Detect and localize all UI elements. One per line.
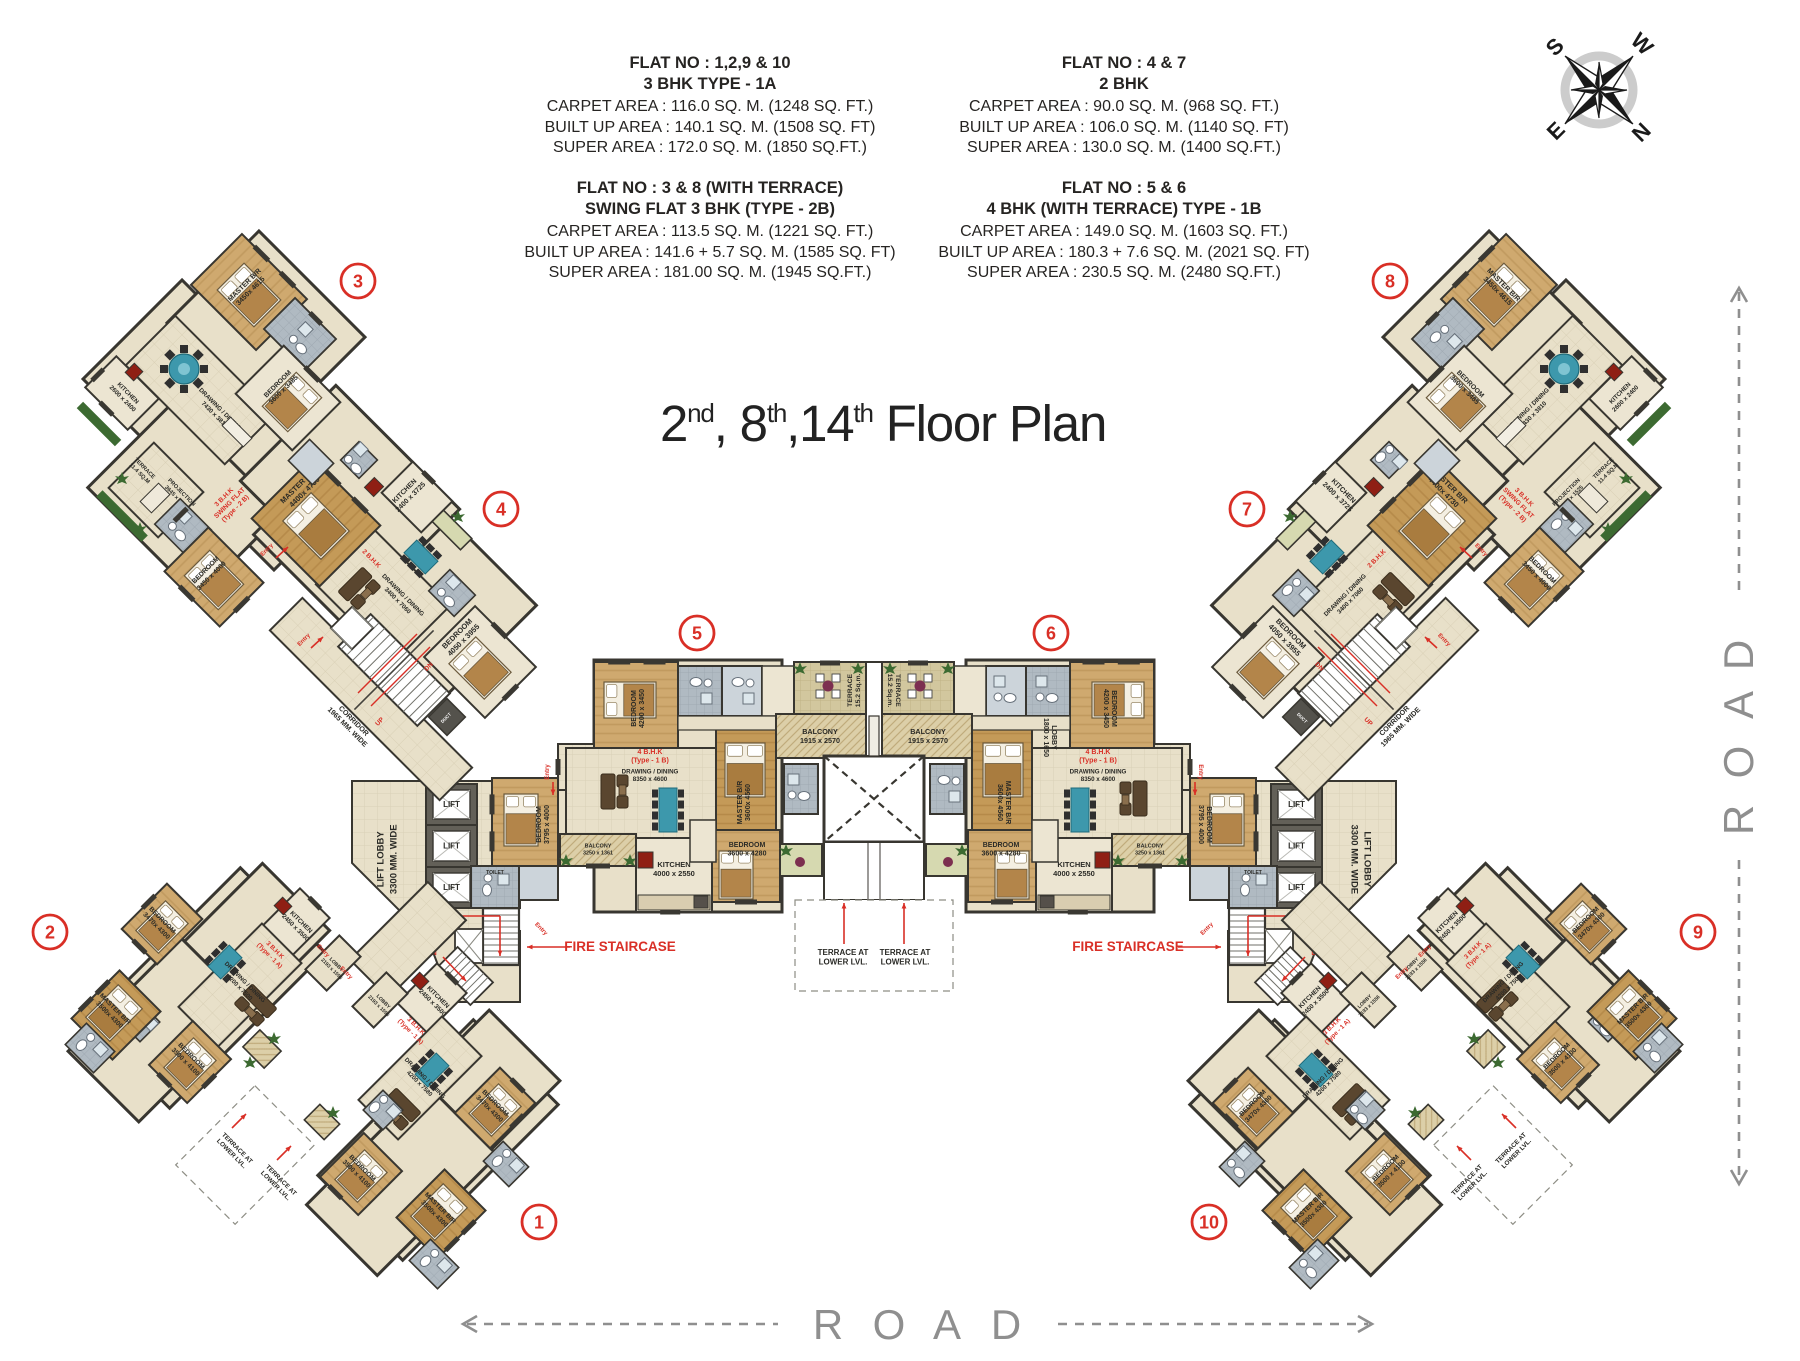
svg-text:9: 9 <box>1693 923 1703 943</box>
svg-text:SWING FLAT 3 BHK (TYPE - 2B): SWING FLAT 3 BHK (TYPE - 2B) <box>585 200 835 218</box>
svg-text:LIFT: LIFT <box>443 800 460 809</box>
svg-text:BUILT UP AREA : 106.0 SQ. M. (: BUILT UP AREA : 106.0 SQ. M. (1140 SQ. F… <box>959 119 1289 136</box>
svg-text:BALCONY: BALCONY <box>910 727 946 736</box>
svg-text:BUILT UP AREA : 141.6 + 5.7 SQ: BUILT UP AREA : 141.6 + 5.7 SQ. M. (1585… <box>524 244 895 261</box>
svg-text:LIFT LOBBY: LIFT LOBBY <box>1362 831 1373 888</box>
svg-text:LIFT: LIFT <box>1288 800 1305 809</box>
svg-text:CARPET AREA : 149.0 SQ. M. (16: CARPET AREA : 149.0 SQ. M. (1603 SQ. FT.… <box>960 223 1288 240</box>
svg-text:2nd, 8th,14th Floor Plan: 2nd, 8th,14th Floor Plan <box>660 395 1106 452</box>
svg-text:BEDROOM: BEDROOM <box>1205 806 1212 843</box>
svg-text:FLAT NO : 1,2,9 & 10: FLAT NO : 1,2,9 & 10 <box>629 54 790 72</box>
svg-text:MASTER B/R: MASTER B/R <box>1004 781 1011 825</box>
svg-text:3600x 4560: 3600x 4560 <box>745 784 752 821</box>
svg-text:FLAT NO : 3 & 8 (WITH TERRACE): FLAT NO : 3 & 8 (WITH TERRACE) <box>577 179 843 197</box>
svg-text:BALCONY: BALCONY <box>1137 843 1164 849</box>
svg-text:KITCHEN: KITCHEN <box>1057 860 1090 869</box>
svg-text:SUPER AREA : 130.0 SQ. M. (140: SUPER AREA : 130.0 SQ. M. (1400 SQ.FT.) <box>967 139 1281 156</box>
svg-text:A: A <box>1715 691 1762 719</box>
svg-text:3: 3 <box>353 272 363 292</box>
svg-text:3250 x 1361: 3250 x 1361 <box>583 850 613 856</box>
svg-text:3 BHK TYPE - 1A: 3 BHK TYPE - 1A <box>644 75 777 93</box>
svg-text:4 B.H.K: 4 B.H.K <box>1086 749 1111 756</box>
svg-text:10: 10 <box>1199 1213 1219 1233</box>
svg-text:O: O <box>873 1301 906 1348</box>
svg-text:8: 8 <box>1385 272 1395 292</box>
svg-text:3300 MM. WIDE: 3300 MM. WIDE <box>389 824 400 894</box>
svg-text:4200 x 3450: 4200 x 3450 <box>1102 689 1109 728</box>
svg-text:LOBBY: LOBBY <box>1050 725 1057 750</box>
svg-text:SUPER AREA : 172.0 SQ. M. (185: SUPER AREA : 172.0 SQ. M. (1850 SQ.FT.) <box>553 139 867 156</box>
svg-text:A: A <box>933 1301 961 1348</box>
svg-text:3600 x 4280: 3600 x 4280 <box>982 851 1021 858</box>
svg-text:3600 x 4280: 3600 x 4280 <box>728 851 767 858</box>
svg-text:LIFT: LIFT <box>443 842 460 851</box>
svg-text:TERRACE: TERRACE <box>847 674 854 707</box>
svg-text:LIFT LOBBY: LIFT LOBBY <box>376 831 387 888</box>
svg-text:8350 x 4600: 8350 x 4600 <box>633 776 668 783</box>
svg-text:TOILET: TOILET <box>486 870 504 876</box>
svg-text:LOWER LVL.: LOWER LVL. <box>819 958 868 967</box>
svg-text:R: R <box>813 1301 843 1348</box>
svg-text:D: D <box>1715 640 1762 670</box>
svg-text:BALCONY: BALCONY <box>802 727 838 736</box>
svg-text:MASTER B/R: MASTER B/R <box>737 781 744 825</box>
svg-text:3795 x 4000: 3795 x 4000 <box>1197 805 1204 844</box>
svg-text:BEDROOM: BEDROOM <box>983 842 1020 849</box>
svg-text:(Type - 1 B): (Type - 1 B) <box>1079 758 1117 765</box>
svg-text:TERRACE: TERRACE <box>894 674 901 707</box>
svg-text:15.2 Sq.m.: 15.2 Sq.m. <box>855 673 862 707</box>
svg-text:CARPET AREA : 116.0 SQ. M. (12: CARPET AREA : 116.0 SQ. M. (1248 SQ. FT.… <box>547 98 874 115</box>
svg-text:O: O <box>1715 746 1762 779</box>
svg-text:R: R <box>1715 805 1762 835</box>
svg-text:CARPET AREA : 90.0 SQ. M. (968: CARPET AREA : 90.0 SQ. M. (968 SQ. FT.) <box>969 98 1279 115</box>
svg-text:SUPER AREA : 181.00 SQ. M. (19: SUPER AREA : 181.00 SQ. M. (1945 SQ.FT.) <box>549 264 872 281</box>
svg-text:BEDROOM: BEDROOM <box>1110 690 1117 727</box>
svg-text:3795 x 4000: 3795 x 4000 <box>544 805 551 844</box>
svg-text:TOILET: TOILET <box>1244 870 1262 876</box>
svg-text:BEDROOM: BEDROOM <box>631 690 638 727</box>
svg-text:BUILT UP AREA : 180.3 + 7.6 SQ: BUILT UP AREA : 180.3 + 7.6 SQ. M. (2021… <box>938 244 1309 261</box>
svg-text:1915 x 2570: 1915 x 2570 <box>908 736 948 745</box>
svg-text:Entry: Entry <box>1197 764 1203 780</box>
svg-text:(Type - 1 B): (Type - 1 B) <box>631 758 669 765</box>
svg-text:4200 x 3450: 4200 x 3450 <box>639 689 646 728</box>
svg-text:LIFT: LIFT <box>1288 842 1305 851</box>
svg-text:BUILT UP AREA : 140.1 SQ. M. (: BUILT UP AREA : 140.1 SQ. M. (1508 SQ. F… <box>545 119 876 136</box>
svg-text:FIRE STAIRCASE: FIRE STAIRCASE <box>1072 939 1184 954</box>
svg-text:1: 1 <box>534 1213 544 1233</box>
svg-text:TERRACE AT: TERRACE AT <box>818 948 869 957</box>
svg-text:KITCHEN: KITCHEN <box>657 860 690 869</box>
svg-text:BALCONY: BALCONY <box>585 843 612 849</box>
svg-text:CARPET AREA : 113.5 SQ. M. (12: CARPET AREA : 113.5 SQ. M. (1221 SQ. FT.… <box>547 223 874 240</box>
svg-text:15.2 Sq.m.: 15.2 Sq.m. <box>886 674 893 708</box>
svg-text:3250 x 1361: 3250 x 1361 <box>1135 850 1165 856</box>
svg-text:4: 4 <box>496 500 506 520</box>
svg-text:5: 5 <box>692 624 702 644</box>
svg-text:7: 7 <box>1242 500 1252 520</box>
svg-text:FLAT NO : 5 & 6: FLAT NO : 5 & 6 <box>1062 179 1186 197</box>
svg-text:4 B.H.K: 4 B.H.K <box>638 749 663 756</box>
svg-text:D: D <box>991 1301 1021 1348</box>
svg-text:FIRE STAIRCASE: FIRE STAIRCASE <box>564 939 676 954</box>
svg-text:LIFT: LIFT <box>443 883 460 892</box>
svg-text:DRAWING / DINING: DRAWING / DINING <box>622 768 679 775</box>
svg-text:4 BHK (WITH TERRACE) TYPE -: 4 BHK (WITH TERRACE) TYPE - 1B <box>986 200 1261 218</box>
svg-text:FLAT NO : 4 & 7: FLAT NO : 4 & 7 <box>1062 54 1186 72</box>
svg-text:BEDROOM: BEDROOM <box>729 842 766 849</box>
svg-text:BEDROOM: BEDROOM <box>536 806 543 843</box>
svg-text:2: 2 <box>45 923 55 943</box>
svg-text:1800 x 1650: 1800 x 1650 <box>1042 718 1049 757</box>
svg-text:SUPER AREA : 230.5 SQ. M. (248: SUPER AREA : 230.5 SQ. M. (2480 SQ.FT.) <box>967 264 1281 281</box>
svg-text:8350 x 4600: 8350 x 4600 <box>1081 776 1116 783</box>
svg-text:LIFT: LIFT <box>1288 883 1305 892</box>
svg-text:2 BHK: 2 BHK <box>1099 75 1149 93</box>
svg-text:3600x 4560: 3600x 4560 <box>996 784 1003 821</box>
svg-text:4000 x 2550: 4000 x 2550 <box>1053 869 1095 878</box>
svg-text:DRAWING / DINING: DRAWING / DINING <box>1070 768 1127 775</box>
svg-text:4000 x 2550: 4000 x 2550 <box>653 869 695 878</box>
svg-text:6: 6 <box>1046 624 1056 644</box>
svg-text:TERRACE AT: TERRACE AT <box>880 948 931 957</box>
svg-text:LOWER LVL.: LOWER LVL. <box>881 958 930 967</box>
svg-text:3300 MM. WIDE: 3300 MM. WIDE <box>1349 824 1360 894</box>
svg-text:Entry: Entry <box>545 764 551 780</box>
svg-text:1915 x 2570: 1915 x 2570 <box>800 736 840 745</box>
